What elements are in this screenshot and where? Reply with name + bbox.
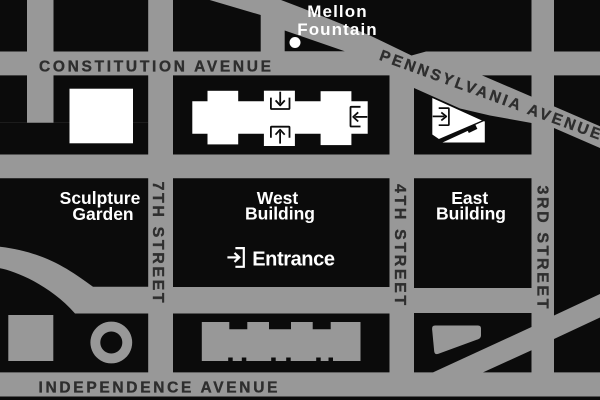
svg-text:7TH STREET: 7TH STREET [149,182,166,306]
svg-text:3RD STREET: 3RD STREET [534,186,551,312]
svg-text:CONSTITUTION AVENUE: CONSTITUTION AVENUE [39,59,274,76]
svg-text:INDEPENDENCE AVENUE: INDEPENDENCE AVENUE [39,380,281,397]
svg-text:Building: Building [245,203,315,223]
svg-text:Garden: Garden [72,204,133,224]
svg-text:Entrance: Entrance [252,249,335,271]
svg-text:Mellon: Mellon [307,2,367,21]
svg-text:Building: Building [436,203,506,223]
svg-text:4TH STREET: 4TH STREET [391,184,408,308]
svg-text:Fountain: Fountain [297,20,378,39]
